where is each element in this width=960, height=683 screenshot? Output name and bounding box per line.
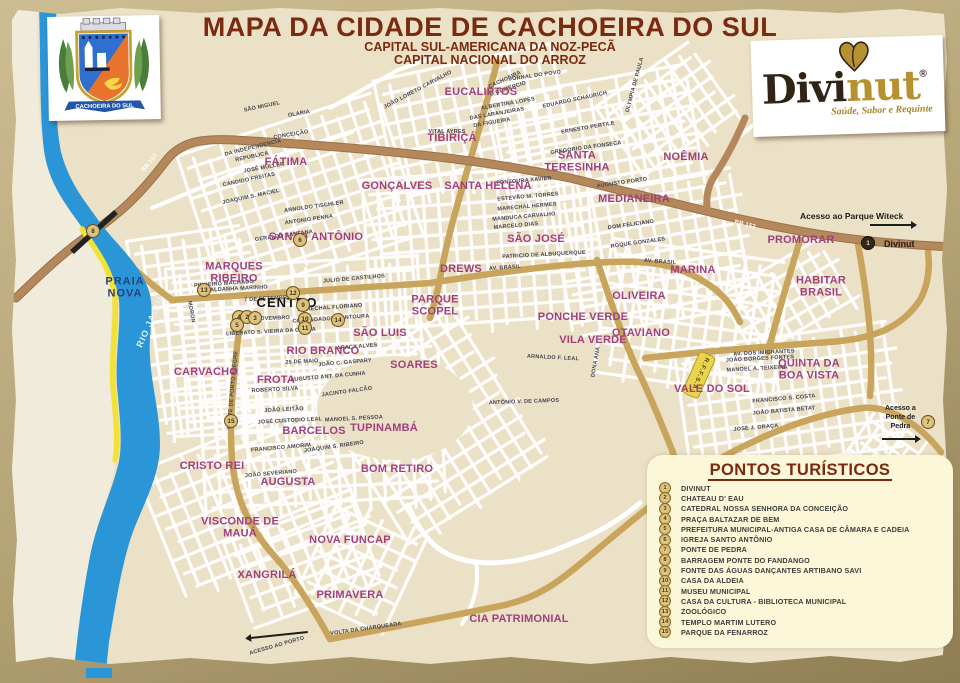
poi-marker: 14: [331, 313, 345, 327]
legend-item-label: IGREJA SANTO ANTÔNIO: [681, 535, 772, 544]
legend-item: 3CATEDRAL NOSSA SENHORA DA CONCEIÇÃO: [659, 504, 945, 514]
legend-item-label: MUSEU MUNICIPAL: [681, 587, 751, 596]
legend-item: 13ZOOLÓGICO: [659, 607, 945, 617]
arrow-right-icon: [870, 224, 912, 226]
legend-item-label: PONTE DE PEDRA: [681, 545, 747, 554]
legend-item-label: ZOOLÓGICO: [681, 607, 726, 616]
legend-item-label: BARRAGEM PONTE DO FANDANGO: [681, 556, 810, 565]
legend-item: 4PRAÇA BALTAZAR DE BEM: [659, 514, 945, 524]
legend-item: 14TEMPLO MARTIM LUTERO: [659, 617, 945, 627]
divinut-marker-label: Divinut: [884, 239, 915, 249]
legend-item: 2CHATEAU D' EAU: [659, 493, 945, 503]
legend-title: PONTOS TURÍSTICOS: [647, 461, 953, 480]
legend-item: 10CASA DA ALDEIA: [659, 576, 945, 586]
mural-crown: [81, 18, 126, 31]
legend-item-label: DIVINUT: [681, 484, 711, 493]
poi-marker: 8: [86, 224, 100, 238]
crest-banner-label: CACHOEIRA DO SUL: [75, 103, 134, 110]
arrow-right-icon: [882, 438, 916, 440]
poi-marker: 11: [298, 321, 312, 335]
legend-item: 6IGREJA SANTO ANTÔNIO: [659, 534, 945, 544]
poi-marker: 7: [921, 415, 935, 429]
legend-item: 12CASA DA CULTURA - BIBLIOTECA MUNICIPAL: [659, 596, 945, 606]
poi-marker: 3: [248, 311, 262, 325]
legend-list: 1DIVINUT2CHATEAU D' EAU3CATEDRAL NOSSA S…: [647, 483, 953, 637]
legend-item: 9FONTE DAS ÁGUAS DANÇANTES ARTIBANO SAVI: [659, 565, 945, 575]
poi-marker: 13: [197, 283, 211, 297]
legend-item: 11MUSEU MUNICIPAL: [659, 586, 945, 596]
legend-item-label: PREFEITURA MUNICIPAL-ANTIGA CASA DE CÂMA…: [681, 525, 909, 534]
map-poster: { "header": { "title": "MAPA DA CIDADE D…: [0, 0, 960, 683]
legend-item-label: CASA DA ALDEIA: [681, 576, 744, 585]
river-peek: [86, 668, 112, 678]
poi-marker: 12: [286, 286, 300, 300]
access-ponte-pedra-note: Acesso a Ponte de Pedra: [885, 405, 916, 431]
shield: [77, 31, 132, 103]
legend-item-label: FONTE DAS ÁGUAS DANÇANTES ARTIBANO SAVI: [681, 566, 861, 575]
poi-marker: 6: [293, 233, 307, 247]
legend-item-label: PARQUE DA FENARROZ: [681, 628, 768, 637]
divinut-logo: Divinut® Saúde, Sabor e Requinte: [751, 35, 946, 137]
legend-item-label: PRAÇA BALTAZAR DE BEM: [681, 515, 779, 524]
legend-item: 7PONTE DE PEDRA: [659, 545, 945, 555]
legend-item-label: CHATEAU D' EAU: [681, 494, 744, 503]
crest-drawing: CACHOEIRA DO SUL: [47, 15, 161, 121]
legend-item: 1DIVINUT: [659, 483, 945, 493]
logo-tagline: Saúde, Sabor e Requinte: [831, 103, 933, 117]
legend-item-label: CATEDRAL NOSSA SENHORA DA CONCEIÇÃO: [681, 504, 848, 513]
poi-marker: 5: [230, 318, 244, 332]
poi-marker: 15: [224, 414, 238, 428]
legend-panel: PONTOS TURÍSTICOS 1DIVINUT2CHATEAU D' EA…: [647, 455, 953, 648]
registered-mark: ®: [919, 69, 926, 80]
coat-of-arms: CACHOEIRA DO SUL: [47, 15, 161, 121]
legend-item-label: CASA DA CULTURA - BIBLIOTECA MUNICIPAL: [681, 597, 846, 606]
access-parque-witeck-note: Acesso ao Parque Witeck: [800, 211, 903, 221]
legend-item: 8BARRAGEM PONTE DO FANDANGO: [659, 555, 945, 565]
legend-item-number: 15: [659, 626, 671, 638]
legend-item: 15PARQUE DA FENARROZ: [659, 627, 945, 637]
poi-marker: 1: [861, 236, 875, 250]
legend-item-label: TEMPLO MARTIM LUTERO: [681, 618, 776, 627]
poi-marker: 9: [296, 298, 310, 312]
legend-item: 5PREFEITURA MUNICIPAL-ANTIGA CASA DE CÂM…: [659, 524, 945, 534]
